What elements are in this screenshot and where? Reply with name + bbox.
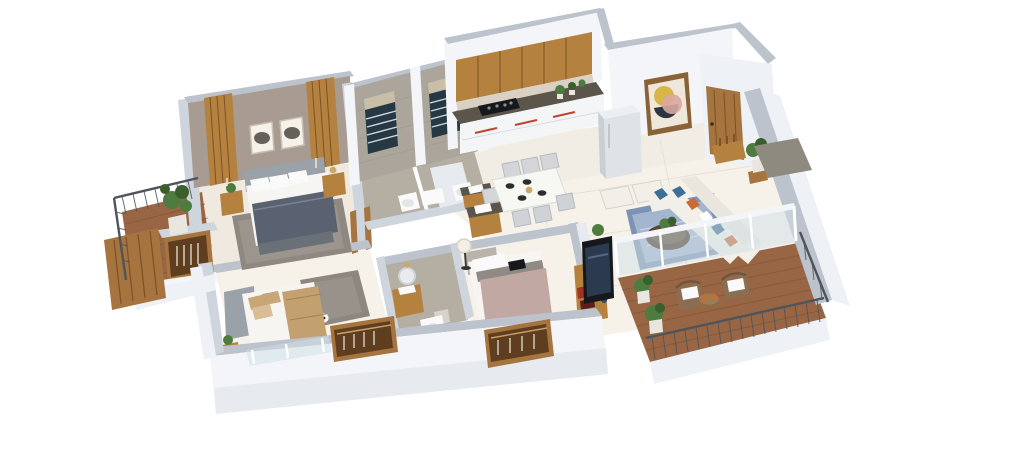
master-framed-art-1 <box>250 122 274 154</box>
refrigerator <box>598 105 642 179</box>
bathroom1-window <box>364 91 398 154</box>
wood-slat-panel-left <box>204 93 238 186</box>
master-framed-art-2 <box>280 117 304 149</box>
bedroom3-tv <box>582 236 614 304</box>
foyer-abstract-art <box>644 72 692 136</box>
wash-basin-unit <box>466 202 503 238</box>
living-small-plant <box>592 224 604 236</box>
master-bed <box>244 157 338 255</box>
wood-slat-panel-right <box>306 77 340 170</box>
balcony-privacy-screen <box>104 228 166 310</box>
floorplan-render-canvas: 3D Isometric Apartment Floor Plan Render… <box>0 0 1018 450</box>
terrace-chair-1 <box>676 281 704 310</box>
foyer-east-wall-cap <box>732 22 776 64</box>
door-handle <box>710 122 714 126</box>
isometric-floorplan: 3D Isometric Apartment Floor Plan Render… <box>0 0 1018 450</box>
